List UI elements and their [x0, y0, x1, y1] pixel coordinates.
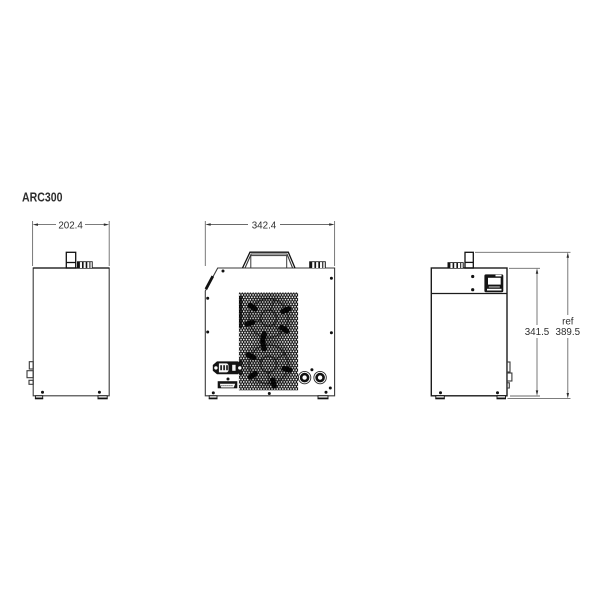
svg-text:342.4: 342.4 [252, 220, 277, 231]
svg-text:389.5: 389.5 [556, 327, 581, 338]
svg-text:ARC300: ARC300 [22, 191, 63, 205]
svg-text:341.5: 341.5 [525, 327, 550, 338]
svg-text:202.4: 202.4 [58, 220, 83, 231]
svg-text:ref: ref [562, 317, 574, 328]
